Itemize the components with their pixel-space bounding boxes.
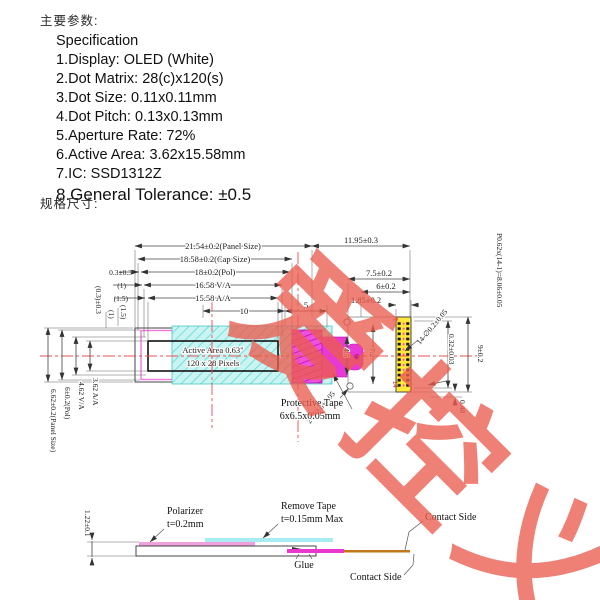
dim-thickness: 1.22±0.1 xyxy=(83,510,92,537)
polarizer-thickness-label: t=0.2mm xyxy=(167,519,204,530)
dim-left-1: (1) xyxy=(117,281,126,290)
dim-left-v15: (1.5) xyxy=(119,305,128,320)
remove-tape-thickness-label: t=0.15mm Max xyxy=(281,514,343,525)
dim-left-15: (1.5) xyxy=(114,294,129,303)
fpc-hole-top xyxy=(344,319,350,325)
dim-aa-height: 3.62 A/A xyxy=(91,378,100,406)
datasheet-page: 主要参数: Specification 1.Display: OLED (Whi… xyxy=(0,0,600,600)
dim-pin-holes: 14-∅0.2±0.05 xyxy=(415,307,450,346)
left-bottom-dimensions: 6.62±0.2(Panel Size) 6±0.2(Pol) 4.62 V/A… xyxy=(44,328,148,453)
protective-tape-size-label: 6x6.5x0.05mm xyxy=(280,411,341,422)
contact-tail xyxy=(344,550,410,553)
fpc-layer xyxy=(287,549,344,553)
dim-fpc-total: 11.95±0.3 xyxy=(344,235,378,245)
fpc-dot xyxy=(354,354,360,360)
dim-pol-width: 18±0.2(Pol) xyxy=(195,267,236,277)
dim-panel-width: 21.54±0.2(Panel Size) xyxy=(185,241,261,251)
dim-left-v1: (1) xyxy=(107,310,116,319)
dim-048: 0.48 xyxy=(458,400,467,413)
front-view: Active Area 0.63" 120 x 28 Pixels 1 14 xyxy=(40,252,478,442)
top-dimensions: 21.54±0.2(Panel Size) 18.58±0.2(Cap Size… xyxy=(135,235,419,341)
dim-10: 10 xyxy=(240,306,249,316)
dim-fpc-72: 7.2 xyxy=(368,348,377,358)
dim-connector-width: 1.85±0.2 xyxy=(351,295,381,305)
dim-5: 5 xyxy=(304,300,308,310)
technical-drawing: Active Area 0.63" 120 x 28 Pixels 1 14 2… xyxy=(0,0,600,600)
dim-fpc-6: 6±0.2 xyxy=(376,281,396,291)
dim-left-03: 0.3±0.3 xyxy=(109,268,132,277)
contact-side-top-label: Contact Side xyxy=(425,512,477,523)
remove-tape-label: Remove Tape xyxy=(281,501,336,512)
remove-tape-layer xyxy=(205,538,333,542)
dim-va-width: 16.58 V/A xyxy=(195,280,232,290)
polarizer-label: Polarizer xyxy=(167,506,204,517)
fpc-hole-bottom xyxy=(347,383,353,389)
pin14-marker: 14 xyxy=(391,381,397,388)
protective-tape-label: Protective Tape xyxy=(281,398,344,409)
contact-side-bottom-label: Contact Side xyxy=(350,572,402,583)
active-area-label: Active Area 0.63" xyxy=(182,345,243,355)
dim-pol-height: 6±0.2(Pol) xyxy=(63,387,72,420)
dim-aa-width: 15.58 A/A xyxy=(195,293,231,303)
connector-pins xyxy=(396,321,411,388)
dim-left-v03: (0.3)±0.3 xyxy=(94,286,103,314)
dim-pin-width: 0.32±0.03 xyxy=(447,334,456,365)
side-view: 1.22±0.1 Polarizer t=0.2mm Remove Tape t… xyxy=(83,501,477,583)
dim-pin-pitch: P0.62x(14-1)=8.06±0.05 xyxy=(495,233,504,308)
protective-tape-region xyxy=(292,330,322,383)
active-area-pixels-label: 120 x 28 Pixels xyxy=(187,358,240,368)
dim-fpc-45: 4.5 xyxy=(342,348,351,358)
polarizer-layer xyxy=(139,542,255,546)
dim-panel-height: 6.62±0.2(Panel Size) xyxy=(49,389,58,453)
glue-label: Glue xyxy=(294,560,314,571)
left-top-dimensions: 0.3±0.3 (1) (1.5) (0.3)±0.3 (1) (1.5) xyxy=(94,268,145,328)
dim-fpc-75: 7.5±0.2 xyxy=(366,268,392,278)
dim-va-height: 4.62 V/A xyxy=(77,382,86,410)
dim-cap-width: 18.58±0.2(Cap Size) xyxy=(180,254,251,264)
dim-connector-height: 9±0.2 xyxy=(476,345,485,362)
